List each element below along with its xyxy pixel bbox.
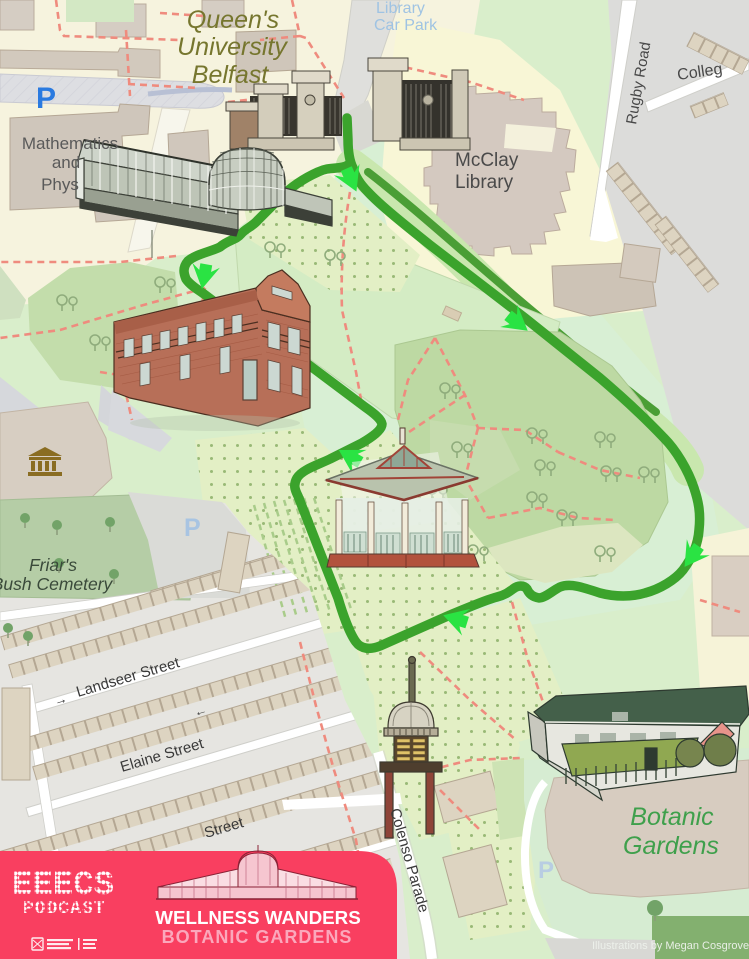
svg-text:Botanic: Botanic <box>630 803 714 831</box>
svg-text:Bush Cemetery: Bush Cemetery <box>0 574 114 594</box>
svg-text:WELLNESS WANDERS: WELLNESS WANDERS <box>155 907 361 928</box>
svg-text:Library: Library <box>376 0 425 17</box>
svg-text:Phys: Phys <box>41 175 79 194</box>
svg-text:PODCAST: PODCAST <box>23 899 106 919</box>
svg-text:and: and <box>52 153 80 172</box>
svg-text:Friar's: Friar's <box>29 555 77 575</box>
svg-text:P: P <box>538 857 554 884</box>
svg-text:Queen's: Queen's <box>187 6 279 34</box>
svg-text:Illustrations by Megan Cosgrov: Illustrations by Megan Cosgrove <box>592 940 749 952</box>
svg-text:P: P <box>36 82 56 115</box>
svg-text:P: P <box>184 514 201 542</box>
svg-text:Car Park: Car Park <box>374 17 438 34</box>
svg-text:McClay: McClay <box>455 150 519 171</box>
svg-text:University: University <box>177 33 288 61</box>
svg-text:BOTANIC GARDENS: BOTANIC GARDENS <box>162 927 353 947</box>
svg-text:Belfast: Belfast <box>192 61 269 89</box>
svg-text:Mathematics: Mathematics <box>22 134 118 153</box>
svg-text:Gardens: Gardens <box>623 832 719 860</box>
svg-text:Library: Library <box>455 172 514 193</box>
